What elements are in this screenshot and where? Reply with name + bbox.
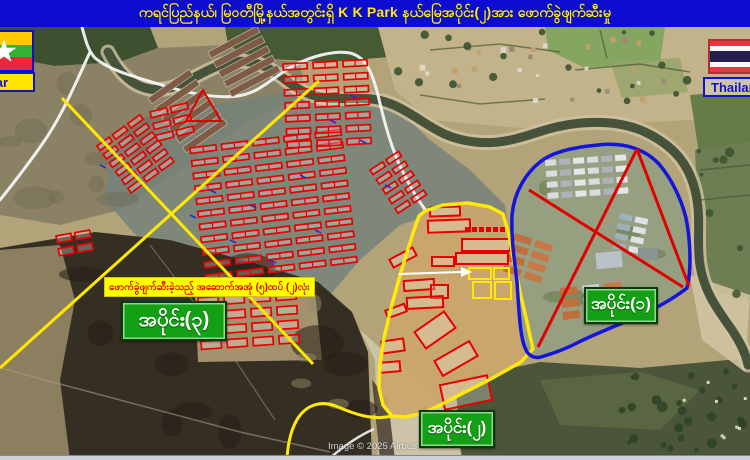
imagery-attribution: Image © 2025 Airbus [328,441,417,452]
screenshot-page: ကရင်ပြည်နယ်၊ မြဝတီမြို့နယ်အတွင်းရှိ K K … [0,0,750,460]
section-3-label: အပိုင်း(၃) [121,301,227,341]
destroyed-building-annotation: ဖောက်ခွဲဖျက်ဆီးခဲ့သည့် အဆောက်အအုံ (၅)ထပ်… [104,277,315,297]
thailand-label: Thailand [703,77,750,97]
satellite-map [0,0,750,460]
section-2-label: အပိုင်း(၂) [419,410,495,448]
window-edge [0,455,750,460]
map-canvas [0,0,750,460]
thailand-flag [708,39,750,74]
myanmar-label: Myanmar [0,72,35,92]
flag-stripe [710,51,750,62]
title-bar: ကရင်ပြည်နယ်၊ မြဝတီမြို့နယ်အတွင်းရှိ K K … [0,0,750,27]
flag-stripe [710,67,750,72]
page-title: ကရင်ပြည်နယ်၊ မြဝတီမြို့နယ်အတွင်းရှိ K K … [139,3,611,24]
section-1-label: အပိုင်း(၁) [584,287,658,324]
flag-stripe [0,57,32,70]
myanmar-flag [0,30,34,72]
